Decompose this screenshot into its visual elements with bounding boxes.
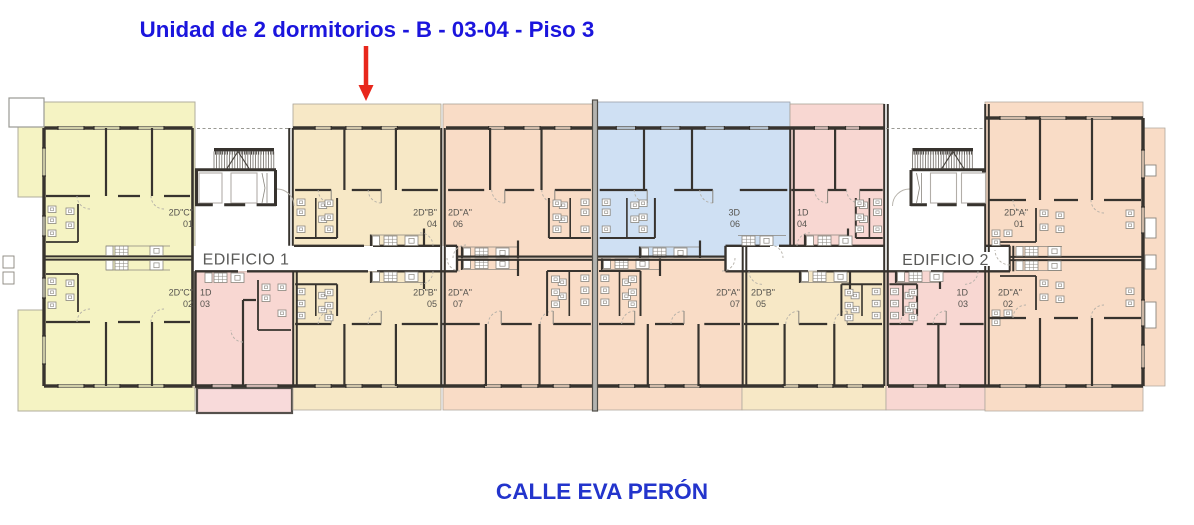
svg-text:1D: 1D <box>200 288 212 298</box>
svg-text:2D"A": 2D"A" <box>448 288 472 298</box>
svg-text:01: 01 <box>1014 219 1024 229</box>
svg-text:1D: 1D <box>956 288 968 298</box>
svg-text:2D"B": 2D"B" <box>413 288 437 298</box>
svg-text:2D"B": 2D"B" <box>751 288 775 298</box>
svg-text:03: 03 <box>958 299 968 309</box>
svg-text:2D"A": 2D"A" <box>1004 208 1028 218</box>
svg-text:CALLE EVA PERÓN: CALLE EVA PERÓN <box>496 479 708 504</box>
svg-text:06: 06 <box>453 219 463 229</box>
svg-text:02: 02 <box>183 299 193 309</box>
svg-text:2D"A": 2D"A" <box>716 288 740 298</box>
svg-text:EDIFICIO 1: EDIFICIO 1 <box>203 252 290 269</box>
svg-text:2D"C": 2D"C" <box>169 288 193 298</box>
svg-text:03: 03 <box>200 299 210 309</box>
svg-text:2D"A": 2D"A" <box>998 288 1022 298</box>
svg-text:07: 07 <box>730 299 740 309</box>
svg-text:Unidad de 2 dormitorios - B -: Unidad de 2 dormitorios - B - 03-04 - Pi… <box>140 17 595 42</box>
svg-text:1D: 1D <box>797 208 809 218</box>
svg-text:06: 06 <box>730 219 740 229</box>
svg-text:05: 05 <box>756 299 766 309</box>
svg-text:01: 01 <box>183 219 193 229</box>
svg-text:2D"B": 2D"B" <box>413 208 437 218</box>
svg-text:2D"C": 2D"C" <box>169 208 193 218</box>
svg-text:EDIFICIO 2: EDIFICIO 2 <box>902 252 989 269</box>
svg-text:3D: 3D <box>728 208 740 218</box>
svg-text:04: 04 <box>427 219 437 229</box>
svg-text:02: 02 <box>1003 299 1013 309</box>
svg-text:2D"A": 2D"A" <box>448 208 472 218</box>
svg-text:05: 05 <box>427 299 437 309</box>
svg-text:04: 04 <box>797 219 807 229</box>
svg-text:07: 07 <box>453 299 463 309</box>
